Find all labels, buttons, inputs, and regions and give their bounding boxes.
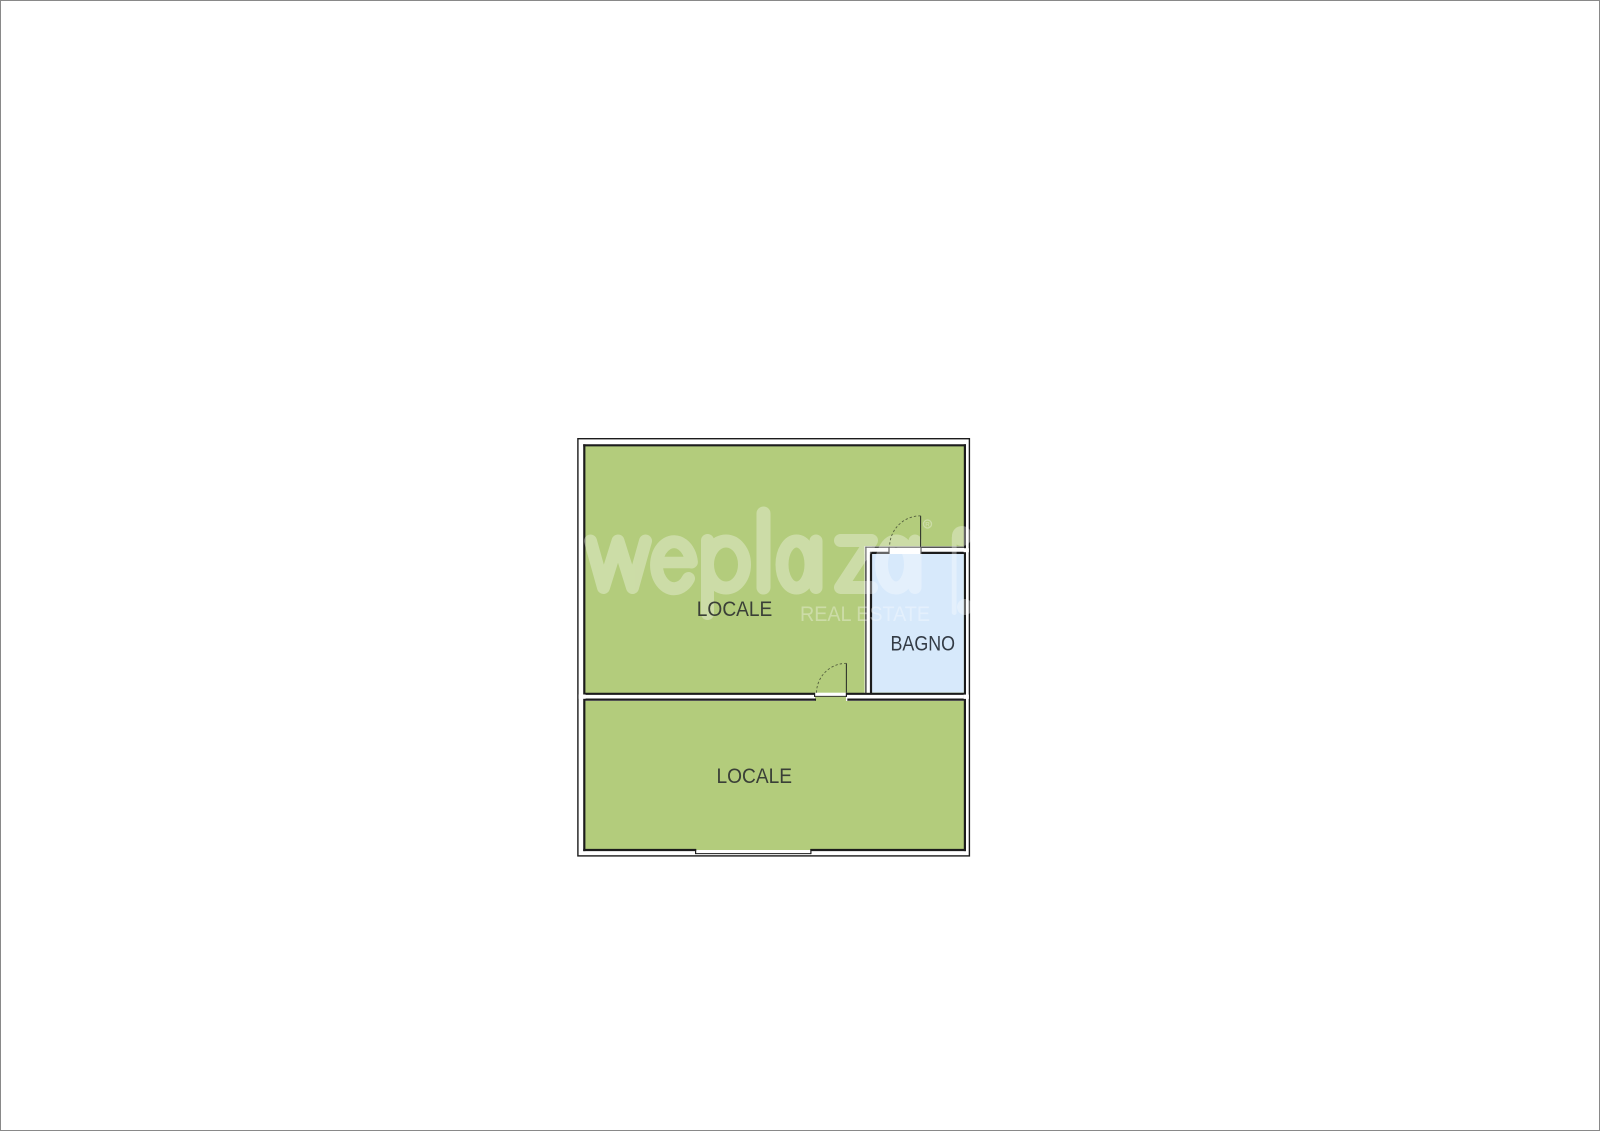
svg-text:REAL ESTATE: REAL ESTATE: [800, 602, 930, 626]
svg-text:LOCALE: LOCALE: [717, 764, 793, 788]
svg-text:BAGNO: BAGNO: [891, 632, 956, 656]
svg-text:R: R: [925, 521, 930, 528]
svg-text:LOCALE: LOCALE: [697, 597, 773, 621]
